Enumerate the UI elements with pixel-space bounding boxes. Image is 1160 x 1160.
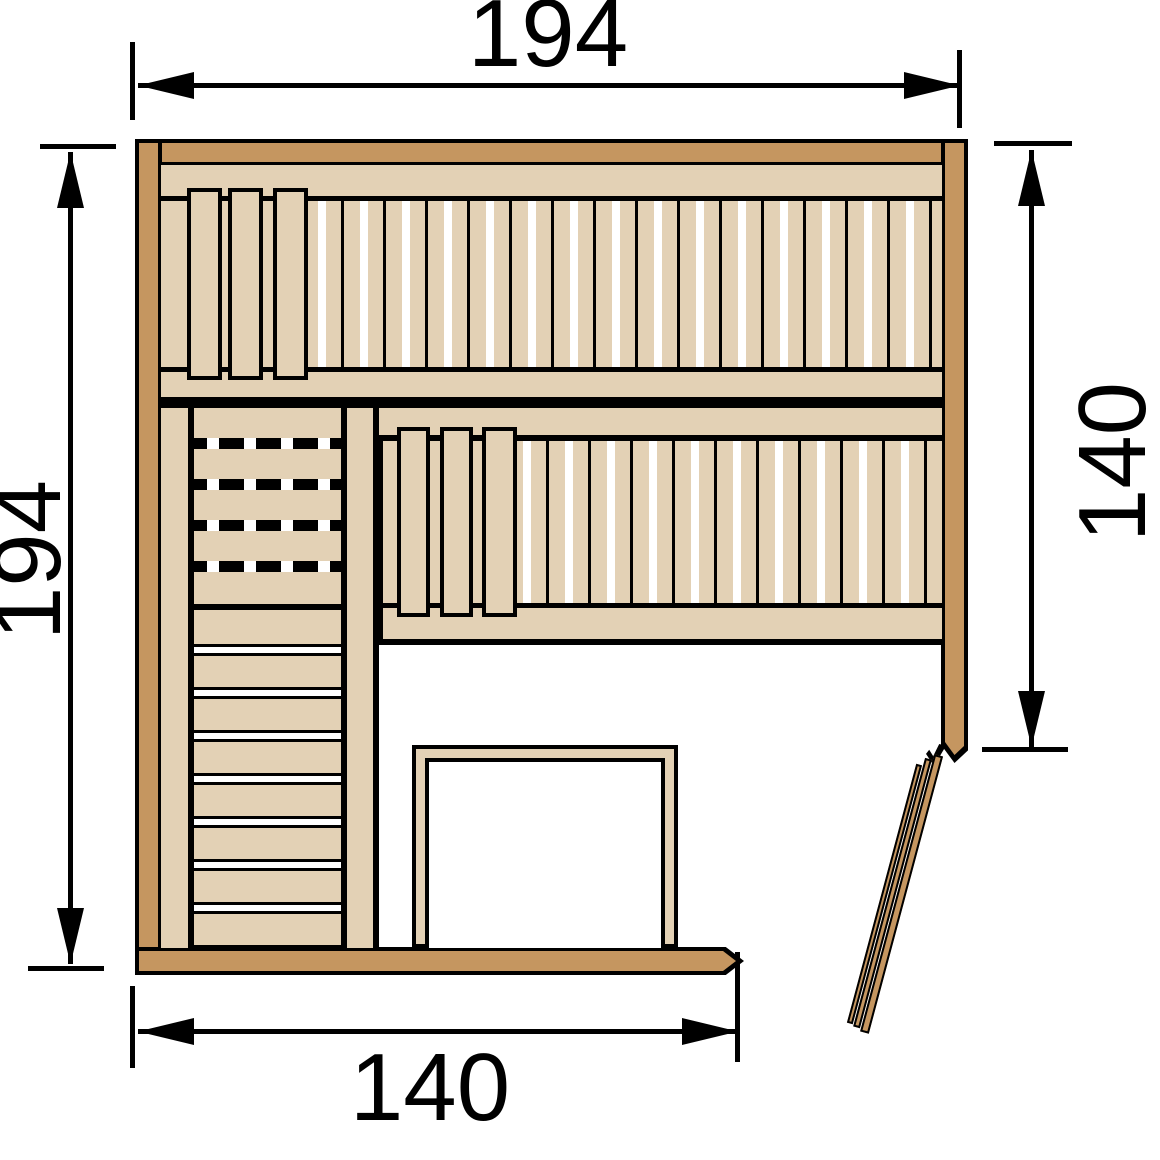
dimension-bottom-label: 140	[330, 1040, 530, 1140]
dimension-top-line	[138, 83, 960, 88]
arrowhead-right-icon	[682, 1018, 738, 1045]
arrowhead-up-icon	[1018, 150, 1045, 206]
dimension-right-tick-top	[994, 141, 1072, 146]
arrowhead-right-icon	[904, 72, 960, 99]
bench-left-slat-panel	[188, 408, 347, 948]
bench-lower	[377, 441, 942, 645]
wall-top	[135, 139, 968, 166]
slat-gap	[194, 520, 341, 531]
bench-left-lower-slats	[194, 613, 341, 948]
heater-interior	[425, 758, 665, 948]
dimension-bottom-tick-right	[735, 952, 740, 1062]
arrowhead-left-icon	[138, 1018, 194, 1045]
wall-right	[941, 139, 968, 739]
bench-board	[187, 188, 222, 380]
dimension-top-tick-right	[957, 50, 962, 128]
bench-board	[228, 188, 263, 380]
bench-board	[397, 427, 430, 617]
dimension-left-line	[68, 152, 73, 964]
bench-left	[161, 402, 379, 948]
dimension-top-tick-left	[130, 42, 135, 120]
bench-left-front-rail	[341, 408, 379, 948]
dimension-right-label: 140	[1065, 362, 1160, 562]
bench-board	[482, 427, 517, 617]
door	[845, 750, 945, 1035]
dimension-top-label: 194	[448, 0, 648, 86]
slat-gap	[194, 479, 341, 490]
dimension-left-tick-bottom	[28, 966, 104, 971]
wall-bottom	[135, 947, 720, 975]
dimension-right-line	[1029, 150, 1034, 750]
dimension-bottom-line	[138, 1029, 738, 1034]
arrowhead-up-icon	[57, 152, 84, 208]
bench-upper-slats	[312, 196, 942, 372]
arrowhead-left-icon	[138, 72, 194, 99]
dimension-right-tick-bottom	[982, 747, 1068, 752]
slat-gap	[194, 438, 341, 449]
slat-gap	[194, 561, 341, 572]
bench-board	[273, 188, 308, 380]
bench-lower-slats	[517, 441, 942, 608]
arrowhead-down-icon	[1018, 691, 1045, 747]
bench-upper	[161, 165, 942, 402]
door-plank	[853, 758, 932, 1028]
slat-line	[194, 604, 341, 610]
arrowhead-down-icon	[57, 908, 84, 964]
bench-board	[440, 427, 473, 617]
dimension-bottom-tick-left	[130, 986, 135, 1068]
door-plank	[847, 764, 922, 1024]
door-plank	[860, 754, 943, 1034]
dimension-left-tick-top	[40, 144, 116, 149]
wall-left	[135, 139, 162, 975]
sauna-floor-plan: 194 194 140 140	[0, 0, 1160, 1160]
